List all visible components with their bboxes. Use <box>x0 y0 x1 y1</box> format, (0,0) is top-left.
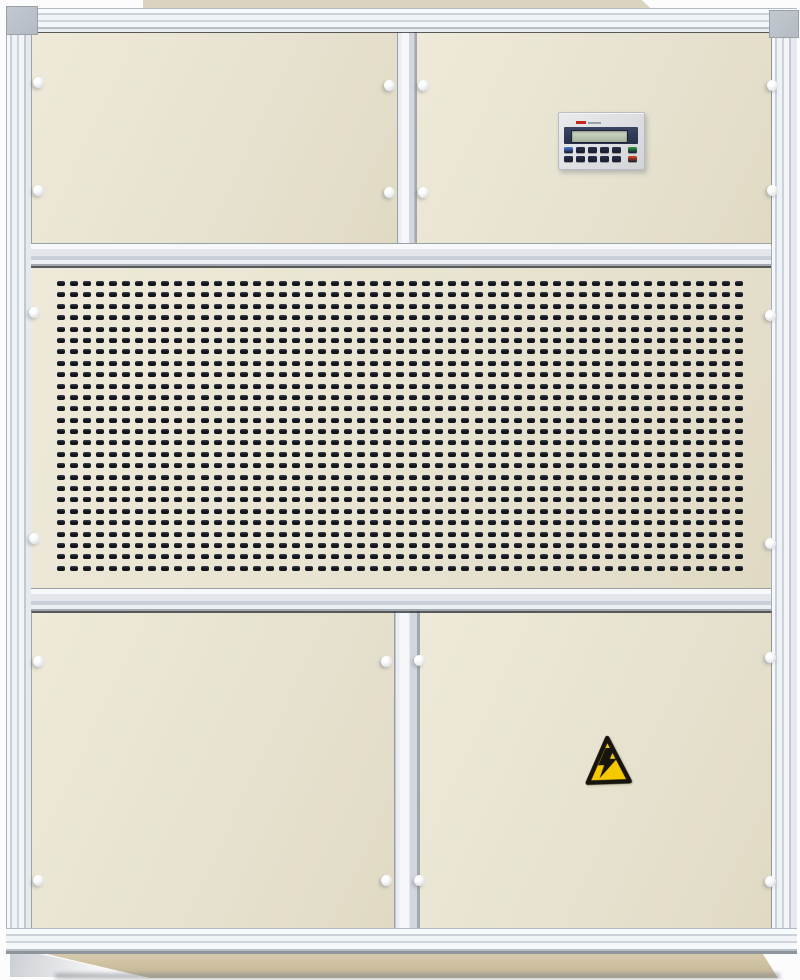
vent-slot <box>201 315 209 320</box>
vent-slot <box>240 349 248 354</box>
vent-slot <box>592 554 600 559</box>
vent-slot <box>475 315 483 320</box>
vent-slot <box>566 395 574 400</box>
vent-slot <box>605 395 613 400</box>
vent-slot <box>135 327 143 332</box>
vent-slot <box>279 304 287 309</box>
vent-slot <box>670 509 678 514</box>
vent-slot <box>344 554 352 559</box>
photo-stage <box>0 0 800 980</box>
vent-slot <box>187 338 195 343</box>
vent-slot <box>722 475 730 480</box>
vent-slot <box>240 292 248 297</box>
vent-slot <box>227 463 235 468</box>
vent-slot <box>605 532 613 537</box>
vent-slot <box>201 543 209 548</box>
vent-slot <box>370 497 378 502</box>
vent-slot <box>240 372 248 377</box>
vent-slot <box>709 395 717 400</box>
vent-slot <box>148 338 156 343</box>
vent-slot <box>357 452 365 457</box>
vent-slot <box>435 338 443 343</box>
vent-slot <box>187 361 195 366</box>
vent-slot <box>422 509 430 514</box>
vent-slot <box>83 554 91 559</box>
vent-slot <box>657 452 665 457</box>
vent-slot <box>435 520 443 525</box>
vent-slot <box>722 361 730 366</box>
vent-slot <box>566 520 574 525</box>
vent-slot <box>696 292 704 297</box>
vent-slot <box>370 554 378 559</box>
vent-slot <box>135 463 143 468</box>
vent-slot <box>305 497 313 502</box>
vent-slot <box>683 349 691 354</box>
vent-slot <box>253 418 261 423</box>
vent-slot <box>461 543 469 548</box>
vent-slot <box>566 281 574 286</box>
vent-slot <box>83 543 91 548</box>
vent-slot <box>383 509 391 514</box>
vent-slot <box>57 418 65 423</box>
vent-slot <box>109 463 117 468</box>
vent-slot <box>331 315 339 320</box>
vent-slot <box>422 315 430 320</box>
vent-slot <box>279 406 287 411</box>
vent-slot <box>553 463 561 468</box>
vent-slot <box>174 452 182 457</box>
vent-slot <box>709 497 717 502</box>
vent-slot <box>618 532 626 537</box>
vent-slot <box>527 372 535 377</box>
vent-slot <box>553 509 561 514</box>
vent-slot <box>161 395 169 400</box>
vent-slot <box>187 292 195 297</box>
vent-slot <box>174 440 182 445</box>
vent-slot <box>383 395 391 400</box>
vent-slot <box>735 440 743 445</box>
vent-slot <box>357 566 365 571</box>
vent-slot <box>709 440 717 445</box>
vent-slot <box>305 520 313 525</box>
vent-slot <box>266 418 274 423</box>
vent-slot <box>461 497 469 502</box>
vent-slot <box>579 509 587 514</box>
vent-slot <box>383 338 391 343</box>
vent-slot <box>592 486 600 491</box>
vent-slot <box>501 452 509 457</box>
vent-slot <box>657 543 665 548</box>
vent-slot <box>214 418 222 423</box>
vent-slot <box>409 327 417 332</box>
vent-slot <box>631 554 639 559</box>
vent-slot <box>657 509 665 514</box>
vent-slot <box>161 338 169 343</box>
vent-slot <box>435 532 443 537</box>
vent-slot <box>514 315 522 320</box>
vent-slot <box>683 338 691 343</box>
vent-slot <box>448 304 456 309</box>
vent-slot <box>527 532 535 537</box>
vent-slot <box>279 452 287 457</box>
vent-slot <box>279 509 287 514</box>
vent-slot <box>409 440 417 445</box>
vent-slot <box>266 520 274 525</box>
vent-slot <box>187 281 195 286</box>
vent-slot <box>187 429 195 434</box>
vent-slot <box>83 281 91 286</box>
vent-slot <box>422 475 430 480</box>
vent-slot <box>383 281 391 286</box>
vent-slot <box>135 566 143 571</box>
vent-slot <box>540 543 548 548</box>
vent-slot <box>618 566 626 571</box>
vent-slot <box>331 418 339 423</box>
vent-slot <box>553 327 561 332</box>
vent-slot <box>409 361 417 366</box>
vent-slot <box>331 384 339 389</box>
vent-slot <box>174 429 182 434</box>
vent-slot <box>135 509 143 514</box>
vent-slot <box>709 418 717 423</box>
vent-slot <box>670 361 678 366</box>
vent-slot <box>305 475 313 480</box>
vent-slot <box>722 509 730 514</box>
vent-slot <box>631 406 639 411</box>
vent-slot <box>396 429 404 434</box>
vent-slot <box>683 327 691 332</box>
vent-slot <box>305 509 313 514</box>
vent-slot <box>292 406 300 411</box>
vent-slot <box>540 497 548 502</box>
vent-slot <box>174 520 182 525</box>
vent-slot <box>109 509 117 514</box>
vent-slot <box>605 543 613 548</box>
vent-slot <box>357 384 365 389</box>
vent-slot <box>461 384 469 389</box>
vent-slot <box>357 543 365 548</box>
vent-slot <box>683 406 691 411</box>
vent-slot <box>253 486 261 491</box>
vent-slot <box>514 554 522 559</box>
vent-slot <box>174 532 182 537</box>
vent-slot <box>579 292 587 297</box>
vent-slot <box>279 361 287 366</box>
vent-slot <box>83 486 91 491</box>
vent-slot <box>657 361 665 366</box>
vent-slot <box>109 532 117 537</box>
vent-slot <box>279 463 287 468</box>
vent-slot <box>579 452 587 457</box>
vent-slot <box>422 543 430 548</box>
frame-top-rail <box>6 8 797 32</box>
vent-slot <box>514 452 522 457</box>
vent-slot <box>174 566 182 571</box>
vent-slot <box>396 338 404 343</box>
vent-slot <box>435 463 443 468</box>
vent-slot <box>722 497 730 502</box>
vent-slot <box>148 429 156 434</box>
vent-slot <box>266 281 274 286</box>
vent-slot <box>331 338 339 343</box>
vent-slot <box>696 520 704 525</box>
vent-slot <box>96 440 104 445</box>
vent-slot <box>709 543 717 548</box>
vent-slot <box>501 497 509 502</box>
vent-slot <box>657 566 665 571</box>
vent-slot <box>331 475 339 480</box>
vent-slot <box>122 327 130 332</box>
vent-slot <box>161 315 169 320</box>
vent-slot <box>566 440 574 445</box>
vent-slot <box>461 532 469 537</box>
vent-slot <box>214 304 222 309</box>
vent-slot <box>461 452 469 457</box>
vent-slot <box>96 395 104 400</box>
vent-slot <box>448 349 456 354</box>
vent-slot <box>148 509 156 514</box>
vent-slot <box>488 532 496 537</box>
vent-slot <box>292 509 300 514</box>
vent-slot <box>344 486 352 491</box>
vent-slot <box>735 327 743 332</box>
vent-slot <box>527 361 535 366</box>
vent-slot <box>83 384 91 389</box>
keypad-key <box>628 147 637 153</box>
vent-slot <box>488 543 496 548</box>
vent-slot <box>605 475 613 480</box>
vent-slot <box>266 315 274 320</box>
vent-slot <box>109 475 117 480</box>
vent-slot <box>592 566 600 571</box>
vent-slot <box>135 338 143 343</box>
vent-slot <box>240 532 248 537</box>
vent-slot <box>579 566 587 571</box>
vent-slot <box>553 554 561 559</box>
vent-slot <box>644 497 652 502</box>
vent-slot <box>227 327 235 332</box>
vent-slot <box>109 304 117 309</box>
vent-slot <box>605 486 613 491</box>
vent-slot <box>266 475 274 480</box>
vent-slot <box>161 361 169 366</box>
vent-slot <box>422 497 430 502</box>
vent-slot <box>605 384 613 389</box>
vent-slot <box>57 543 65 548</box>
vent-slot <box>631 315 639 320</box>
vent-slot <box>227 440 235 445</box>
vent-slot <box>201 566 209 571</box>
vent-slot <box>240 395 248 400</box>
vent-slot <box>475 463 483 468</box>
vent-slot <box>266 292 274 297</box>
vent-slot <box>318 281 326 286</box>
vent-slot <box>331 406 339 411</box>
vent-slot <box>409 338 417 343</box>
vent-slot <box>592 384 600 389</box>
vent-slot <box>631 520 639 525</box>
vent-slot <box>370 372 378 377</box>
vent-slot <box>161 566 169 571</box>
vent-slot <box>135 372 143 377</box>
vent-slot <box>83 327 91 332</box>
vent-slot <box>461 509 469 514</box>
vent-slot <box>357 554 365 559</box>
vent-slot <box>266 463 274 468</box>
vent-slot <box>201 395 209 400</box>
vent-slot <box>201 384 209 389</box>
vent-slot <box>279 532 287 537</box>
vent-slot <box>501 566 509 571</box>
vent-slot <box>83 429 91 434</box>
vent-slot <box>370 463 378 468</box>
vent-slot <box>161 509 169 514</box>
vent-slot <box>201 418 209 423</box>
vent-slot <box>148 304 156 309</box>
vent-slot <box>448 418 456 423</box>
vent-slot <box>396 475 404 480</box>
vent-slot <box>214 497 222 502</box>
vent-slot <box>396 384 404 389</box>
vent-slot <box>383 532 391 537</box>
vent-slot <box>57 497 65 502</box>
vent-slot <box>292 463 300 468</box>
vent-slot <box>488 361 496 366</box>
vent-slot <box>566 304 574 309</box>
vent-slot <box>527 384 535 389</box>
vent-slot <box>187 327 195 332</box>
vent-slot <box>227 292 235 297</box>
vent-slot <box>592 520 600 525</box>
vent-slot <box>292 497 300 502</box>
vent-slot <box>174 509 182 514</box>
vent-slot <box>644 418 652 423</box>
vent-slot <box>579 497 587 502</box>
vent-slot <box>279 315 287 320</box>
vent-slot <box>279 327 287 332</box>
vent-slot <box>514 304 522 309</box>
vent-slot <box>187 384 195 389</box>
vent-slot <box>70 520 78 525</box>
vent-slot <box>488 497 496 502</box>
vent-slot <box>683 486 691 491</box>
vent-slot <box>187 509 195 514</box>
vent-slot <box>148 361 156 366</box>
vent-slot <box>488 384 496 389</box>
vent-slot <box>214 349 222 354</box>
vent-slot <box>161 429 169 434</box>
vent-slot <box>501 361 509 366</box>
vent-slot <box>57 475 65 480</box>
vent-slot <box>488 327 496 332</box>
vent-slot <box>605 304 613 309</box>
vent-slot <box>357 418 365 423</box>
keypad-key <box>600 156 609 162</box>
keypad-key <box>588 156 597 162</box>
vent-slot <box>174 406 182 411</box>
vent-slot <box>148 327 156 332</box>
vent-slot <box>514 475 522 480</box>
vent-slot <box>292 440 300 445</box>
vent-slot <box>187 372 195 377</box>
vent-slot <box>670 338 678 343</box>
vent-slot <box>501 349 509 354</box>
vent-slot <box>722 304 730 309</box>
vent-slot <box>266 543 274 548</box>
vent-slot <box>461 429 469 434</box>
vent-slot <box>174 463 182 468</box>
vent-slot <box>488 554 496 559</box>
vent-slot <box>109 566 117 571</box>
vent-slot <box>253 338 261 343</box>
vent-slot <box>657 406 665 411</box>
vent-slot <box>631 543 639 548</box>
vent-slot <box>174 475 182 480</box>
vent-slot <box>201 463 209 468</box>
vent-slot <box>240 304 248 309</box>
vent-slot <box>475 292 483 297</box>
vent-slot <box>709 566 717 571</box>
vent-slot <box>122 486 130 491</box>
vent-slot <box>553 520 561 525</box>
vent-slot <box>96 532 104 537</box>
vent-slot <box>735 338 743 343</box>
vent-slot <box>618 292 626 297</box>
vent-slot <box>709 520 717 525</box>
vent-slot <box>409 372 417 377</box>
vent-slot <box>540 384 548 389</box>
vent-slot <box>670 281 678 286</box>
vent-slot <box>605 440 613 445</box>
vent-slot <box>553 349 561 354</box>
vent-slot <box>722 520 730 525</box>
vent-slot <box>696 327 704 332</box>
vent-slot <box>187 566 195 571</box>
vent-slot <box>553 315 561 320</box>
vent-slot <box>461 361 469 366</box>
vent-slot <box>501 338 509 343</box>
vent-slot <box>383 372 391 377</box>
vent-slot <box>214 486 222 491</box>
vent-slot <box>579 361 587 366</box>
vent-slot <box>553 497 561 502</box>
vent-slot <box>553 566 561 571</box>
vent-slot <box>435 327 443 332</box>
vent-slot <box>409 281 417 286</box>
vent-slot <box>292 475 300 480</box>
vent-slot <box>527 349 535 354</box>
vent-slot <box>501 281 509 286</box>
vent-slot <box>96 304 104 309</box>
vent-slot <box>240 406 248 411</box>
vent-slot <box>266 486 274 491</box>
vent-slot <box>135 497 143 502</box>
vent-slot <box>96 520 104 525</box>
vent-slot <box>422 304 430 309</box>
vent-slot <box>735 315 743 320</box>
vent-slot <box>318 384 326 389</box>
vent-slot <box>135 429 143 434</box>
vent-slot <box>227 452 235 457</box>
vent-slot <box>553 361 561 366</box>
vent-slot <box>135 520 143 525</box>
vent-slot <box>266 395 274 400</box>
keypad-key <box>564 147 573 153</box>
vent-slot <box>683 463 691 468</box>
vent-slot <box>253 315 261 320</box>
vent-slot <box>722 463 730 468</box>
vent-slot <box>501 384 509 389</box>
